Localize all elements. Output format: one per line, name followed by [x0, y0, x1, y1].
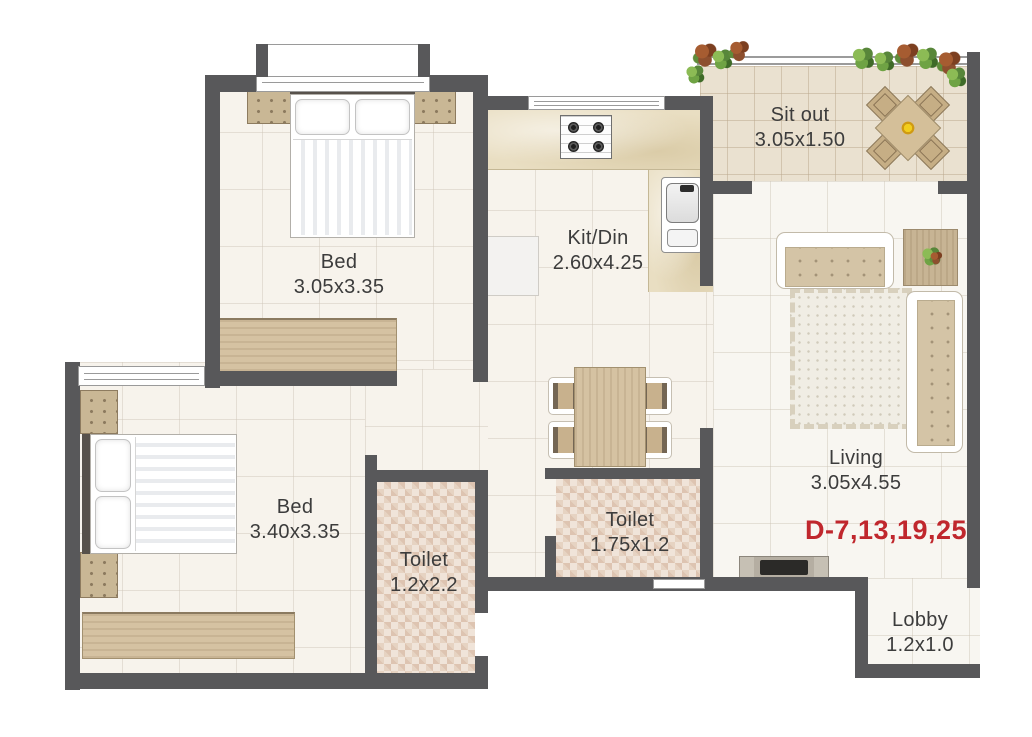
stove-burner — [593, 141, 604, 152]
wall-bay-stub — [256, 44, 268, 77]
pillow — [355, 99, 410, 135]
room-label-living: Living 3.05x4.55 — [811, 446, 902, 496]
room-name: Lobby — [886, 608, 954, 633]
pillow — [95, 439, 131, 492]
room-dims: 3.05x4.55 — [811, 471, 902, 496]
room-dims: 1.75x1.2 — [590, 533, 669, 558]
gas-stove — [560, 115, 612, 159]
wall-bed2-left — [65, 362, 80, 690]
window-glass-line — [84, 379, 199, 380]
room-label-lobby: Lobby 1.2x1.0 — [886, 608, 954, 658]
kitchen-sink — [661, 177, 703, 253]
wall-bed1-right — [473, 75, 488, 382]
door-opening-toilet1 — [475, 613, 488, 656]
room-name: Toilet — [590, 508, 669, 533]
window-glass-line — [84, 373, 199, 374]
room-label-sit-out: Sit out 3.05x1.50 — [755, 103, 846, 153]
wall-kitchen-top-left — [478, 96, 530, 110]
stove-burner — [568, 122, 579, 133]
room-name: Toilet — [390, 548, 458, 573]
floor-passage — [365, 369, 488, 483]
nightstand — [80, 552, 118, 598]
window-glass-line — [534, 105, 659, 106]
room-name: Kit/Din — [553, 226, 644, 251]
room-dims: 3.40x3.35 — [250, 520, 341, 545]
unit-number-label: D-7,13,19,25 — [805, 515, 967, 545]
wall-bottom-left — [65, 673, 488, 689]
sofa — [906, 291, 963, 453]
room-label-kitchen-dining: Kit/Din 2.60x4.25 — [553, 226, 644, 276]
flower-centerpiece — [901, 121, 916, 136]
wall-bed1-left — [205, 75, 220, 388]
faucet — [680, 185, 694, 192]
room-label-toilet2: Toilet 1.75x1.2 — [590, 508, 669, 558]
wardrobe — [217, 318, 397, 372]
room-name: Sit out — [755, 103, 846, 128]
rug — [790, 288, 912, 429]
bed2-window — [78, 366, 205, 386]
wall-right-outer — [967, 52, 980, 588]
wall-sitout-bottom-left — [700, 181, 752, 194]
stove-burner — [593, 122, 604, 133]
sink-bowl — [666, 183, 699, 223]
duvet — [293, 139, 412, 235]
room-label-bedroom2: Bed 3.40x3.35 — [250, 495, 341, 545]
door-opening-toilet2 — [653, 579, 705, 589]
room-name: Living — [811, 446, 902, 471]
floor-plan: Bed 3.05x3.35 Bed 3.40x3.35 Kit/Din 2.60… — [0, 0, 1032, 737]
room-dims: 1.2x1.0 — [886, 633, 954, 658]
pillow — [95, 496, 131, 549]
potted-plant — [726, 38, 752, 64]
television — [760, 560, 808, 575]
wall-bed1-bottom — [205, 371, 397, 386]
room-dims: 3.05x3.35 — [294, 275, 385, 300]
wall-kitchen-living-lower — [700, 428, 713, 588]
potted-plant — [944, 66, 968, 90]
duvet — [135, 437, 235, 551]
wall-toilet1-right-upper — [475, 470, 488, 613]
wall-toilet1-right-lower — [475, 656, 488, 676]
room-label-bedroom1: Bed 3.05x3.35 — [294, 250, 385, 300]
window-glass-line — [534, 101, 659, 102]
potted-plant — [928, 250, 944, 266]
wardrobe — [82, 612, 295, 659]
double-bed — [290, 94, 415, 238]
bay-window — [256, 44, 430, 92]
nightstand — [80, 390, 118, 434]
window-glass-line — [262, 76, 424, 77]
wall-bay-stub — [418, 44, 430, 77]
wall-bed2-right — [365, 455, 377, 675]
nightstand — [247, 90, 292, 124]
sofa — [776, 232, 894, 289]
room-name: Bed — [250, 495, 341, 520]
wall-lobby-step — [855, 591, 868, 666]
window-glass-line — [262, 82, 424, 83]
room-label-toilet1: Toilet 1.2x2.2 — [390, 548, 458, 598]
pillow — [295, 99, 350, 135]
stove-burner — [568, 141, 579, 152]
wall-toilet1-top — [365, 470, 488, 482]
sink-drainboard — [667, 229, 698, 247]
room-name: Bed — [294, 250, 385, 275]
potted-plant — [684, 64, 706, 86]
room-dims: 1.2x2.2 — [390, 573, 458, 598]
wall-toilet2-top — [545, 468, 712, 479]
kitchen-cabinet — [487, 236, 539, 296]
room-dims: 3.05x1.50 — [755, 128, 846, 153]
kitchen-window — [528, 96, 665, 110]
wall-lobby-bottom — [855, 664, 980, 678]
wall-sitout-bottom-right — [938, 181, 980, 194]
double-bed — [90, 434, 237, 554]
nightstand — [412, 90, 456, 124]
sofa-cushions — [785, 247, 885, 287]
dining-table — [574, 367, 646, 467]
room-dims: 2.60x4.25 — [553, 251, 644, 276]
tv-unit — [739, 556, 829, 579]
sofa-cushions — [917, 300, 955, 446]
